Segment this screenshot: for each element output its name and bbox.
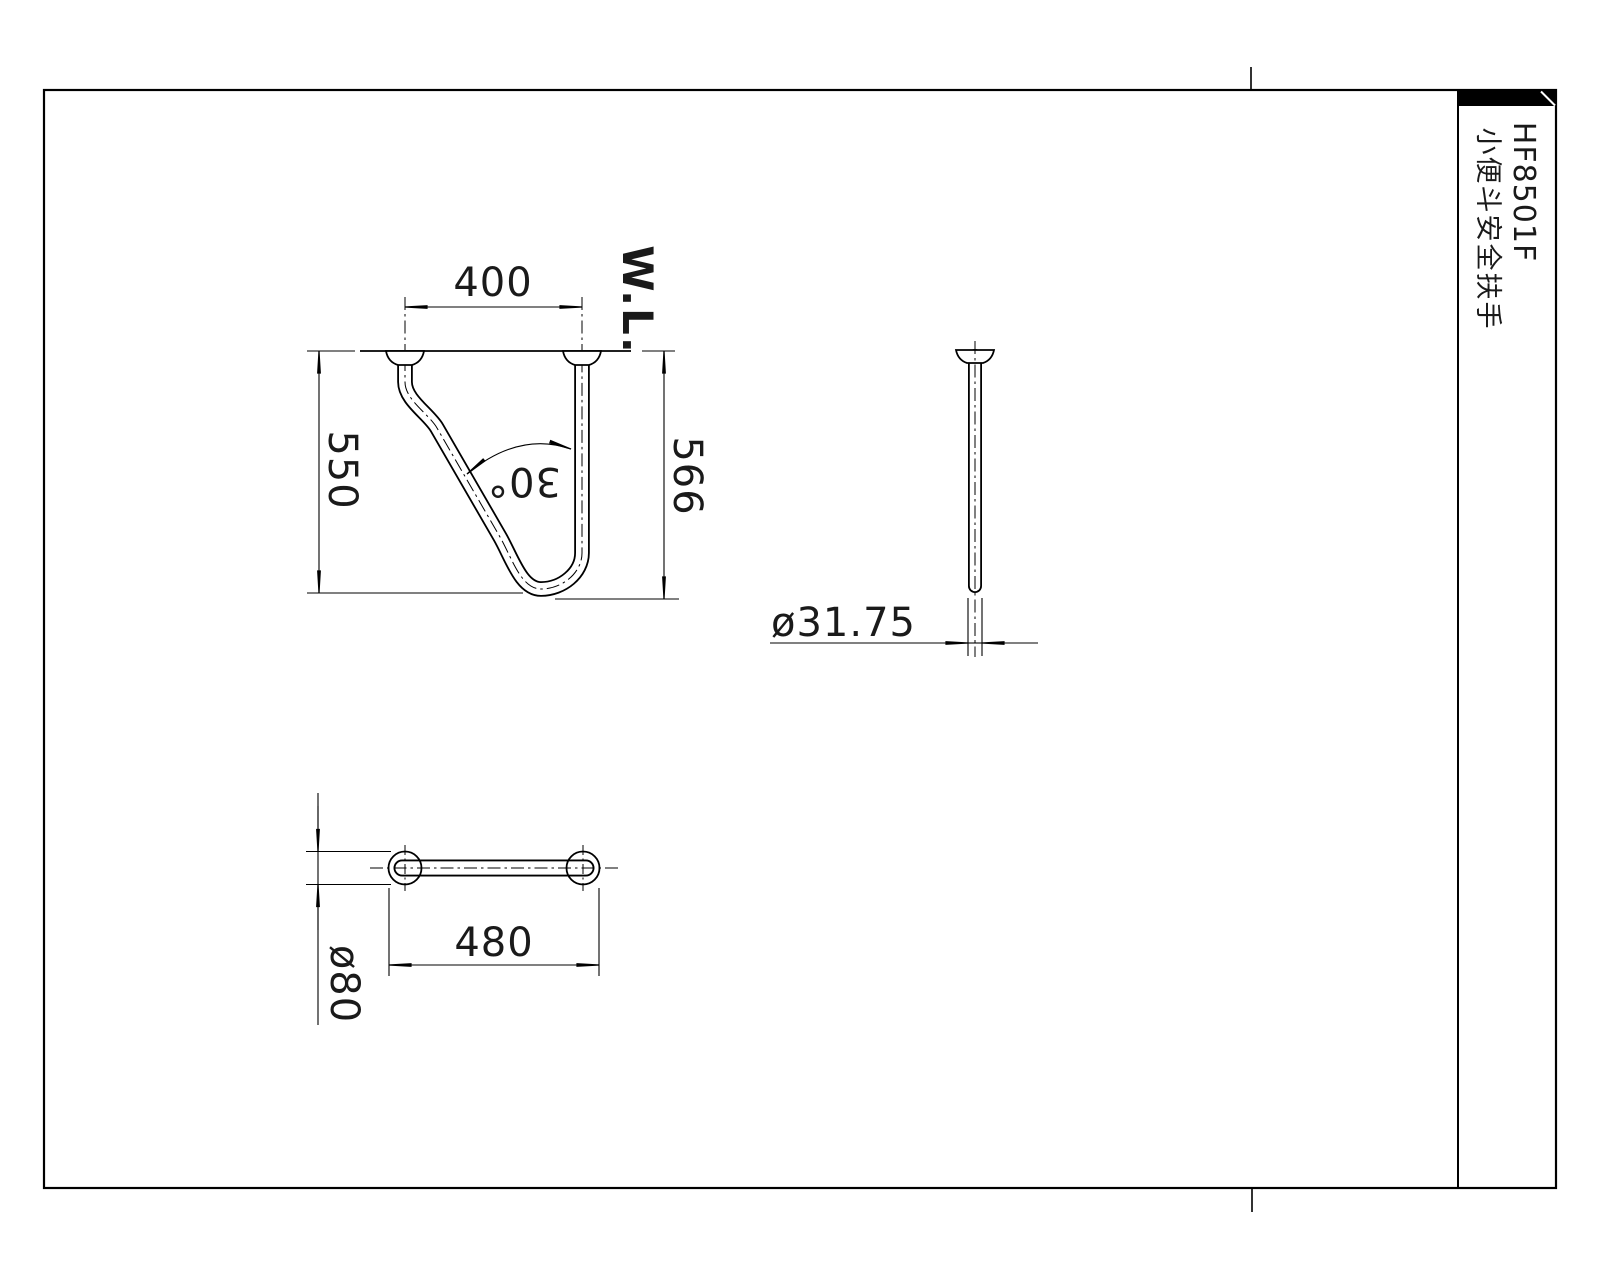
dim-566-text: 566 [664,436,710,515]
dim-480-text: 480 [454,920,533,966]
product-name-text: 小便斗安全扶手 [1472,128,1503,331]
front-view: 400 W.L. 550 566 30° [307,245,710,599]
dim-diameter-80: ø80 [306,793,391,1025]
side-view: ø31.75 [770,341,1038,657]
dim-400: 400 [405,260,582,307]
dim-480: 480 [389,888,599,976]
dim-diameter-31-75: ø31.75 [770,598,1038,656]
wall-line-label: W.L. [613,245,662,355]
dim-550-text: 550 [319,430,365,509]
dim-3175-text: ø31.75 [771,600,916,646]
dim-angle-text: 30° [487,458,561,504]
cad-drawing: HF8501F 小便斗安全扶手 400 W.L. 550 [0,0,1600,1280]
dim-80-text: ø80 [321,945,367,1023]
model-code-text: HF8501F [1506,122,1541,262]
right-wall-flange [563,351,601,365]
drawing-sheet: HF8501F 小便斗安全扶手 400 W.L. 550 [0,0,1600,1280]
dim-400-text: 400 [453,260,532,306]
left-wall-flange [386,351,424,365]
bottom-view: 480 ø80 [306,793,619,1025]
